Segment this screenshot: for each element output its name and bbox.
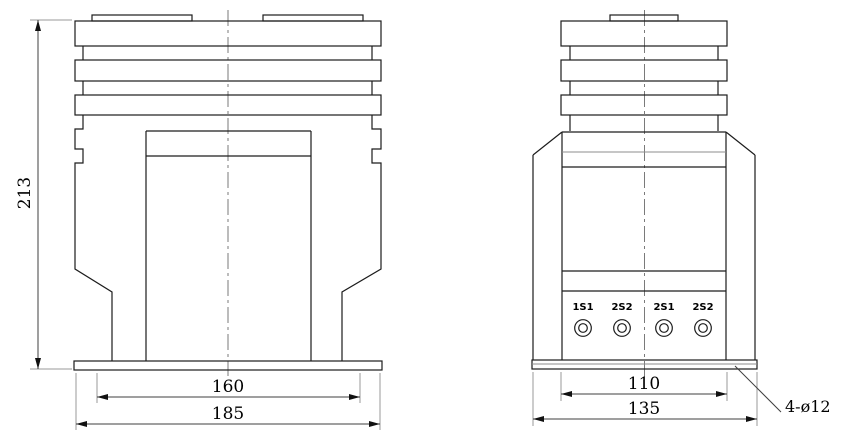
front-dim-height: 213	[15, 20, 72, 369]
arrow-left	[97, 394, 108, 400]
front-top-pad-right	[263, 15, 363, 21]
terminal-screw-1	[575, 320, 592, 337]
terminal-screw-2	[614, 320, 631, 337]
arrow-right	[746, 416, 757, 422]
front-dim-height-label: 213	[15, 177, 35, 209]
terminal-label-4: 2S2	[692, 302, 713, 313]
arrow-down	[35, 358, 41, 369]
front-top-pad-left	[92, 15, 192, 21]
side-view: 1S1 2S2 2S1 2S2	[532, 10, 831, 426]
arrow-right	[369, 421, 380, 427]
arrow-left	[533, 416, 544, 422]
side-dim-inner-label: 110	[628, 374, 660, 394]
terminal-label-1: 1S1	[572, 302, 593, 313]
terminal-label-2: 2S2	[611, 302, 632, 313]
front-dim-inner: 160	[97, 373, 360, 403]
front-dim-inner-label: 160	[212, 377, 244, 397]
side-dim-inner: 110	[561, 372, 727, 401]
arrow-left	[76, 421, 87, 427]
hole-note-leader	[735, 366, 781, 412]
side-dim-outer-label: 135	[628, 399, 660, 419]
arrow-right	[716, 391, 727, 397]
arrow-up	[35, 20, 41, 31]
terminal-label-3: 2S1	[653, 302, 674, 313]
front-dim-outer-label: 185	[212, 404, 244, 424]
drawing-canvas: 160 185 213	[0, 0, 848, 447]
terminal-screw-3	[656, 320, 673, 337]
hole-note-label: 4-ø12	[785, 397, 831, 416]
front-body-profile-left	[75, 115, 112, 361]
front-view: 160 185 213	[15, 10, 382, 430]
terminal-block: 1S1 2S2 2S1 2S2	[572, 302, 713, 336]
arrow-right	[349, 394, 360, 400]
arrow-left	[561, 391, 572, 397]
technical-drawing: 160 185 213	[0, 0, 848, 447]
front-body-profile-right	[342, 115, 381, 361]
terminal-screw-4	[695, 320, 712, 337]
hole-note: 4-ø12	[735, 366, 831, 416]
